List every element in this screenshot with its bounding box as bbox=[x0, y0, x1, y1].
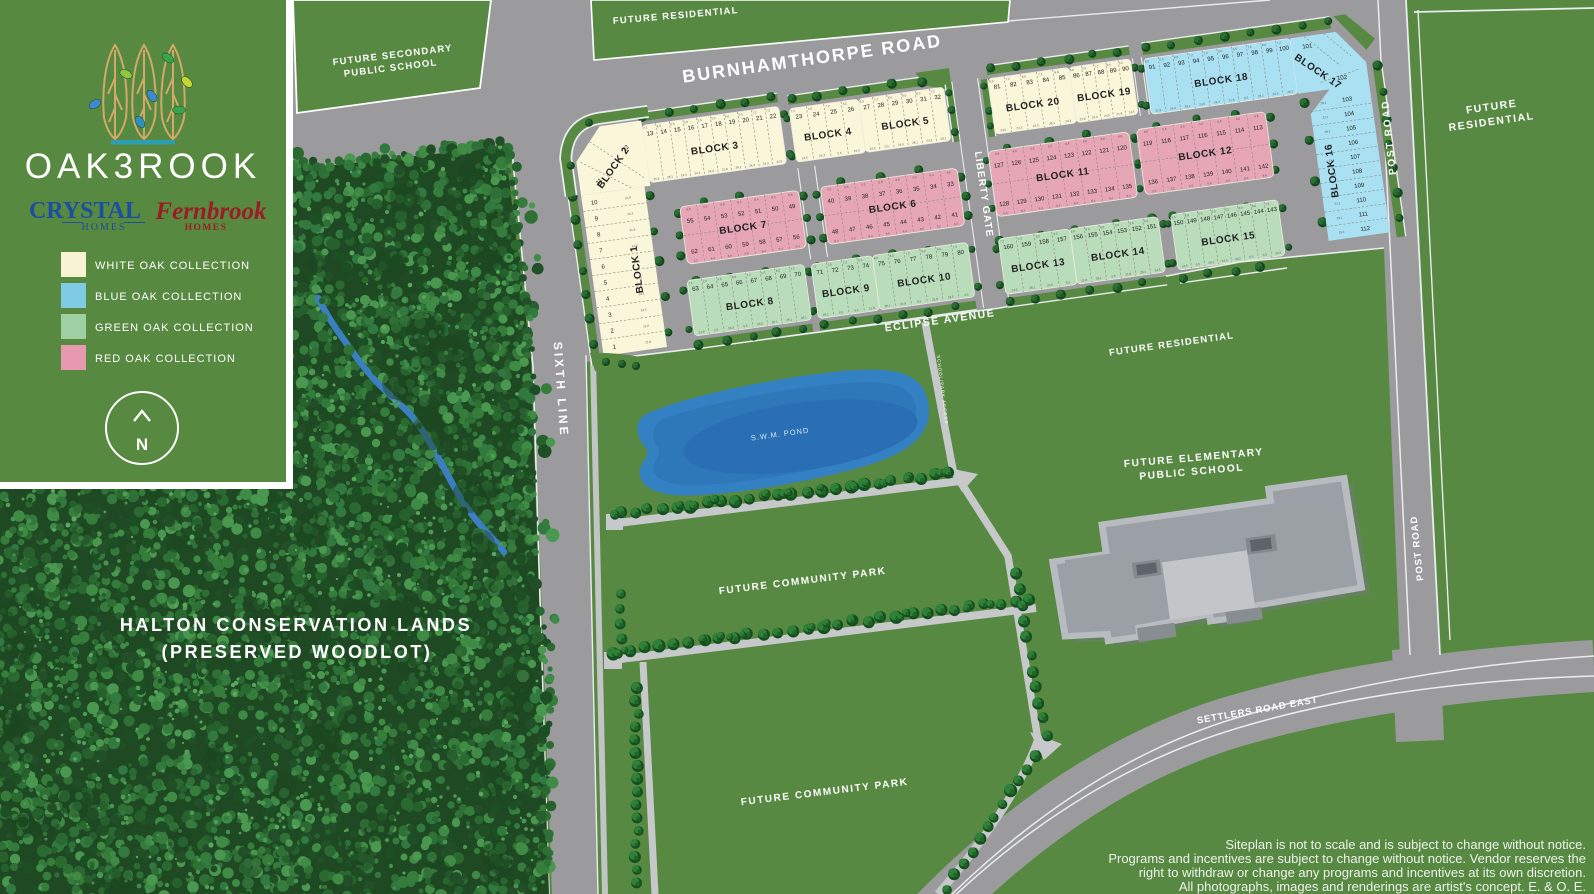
svg-text:HALTON CONSERVATION LANDS: HALTON CONSERVATION LANDS bbox=[120, 615, 472, 635]
svg-text:(PRESERVED WOODLOT): (PRESERVED WOODLOT) bbox=[161, 642, 432, 662]
